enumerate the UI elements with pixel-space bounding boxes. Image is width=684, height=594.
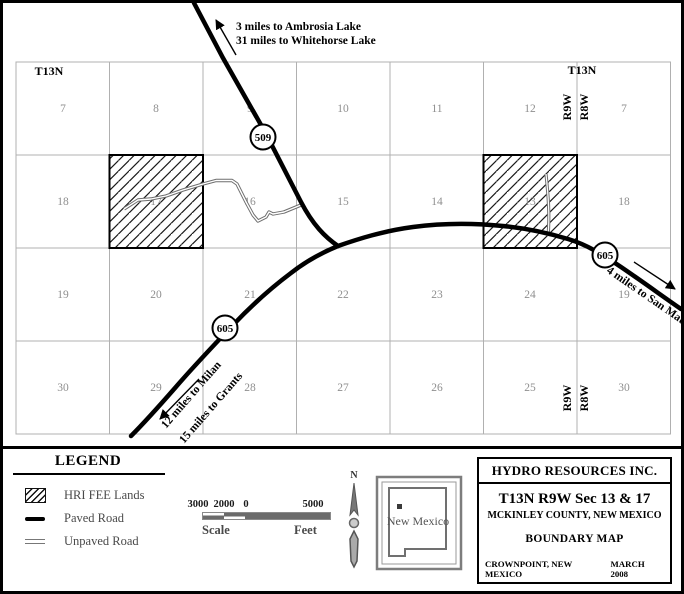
section-number: 29 xyxy=(150,382,162,394)
compass-needle-bottom xyxy=(350,531,358,567)
legend: LEGEND HRI FEE Lands Paved Road Unpaved … xyxy=(9,453,179,553)
route-shield-509: 509 xyxy=(251,125,276,150)
range-label-r8w-top: R8W xyxy=(577,94,591,121)
section-number: 22 xyxy=(337,289,349,301)
section-number: 30 xyxy=(57,382,69,394)
section-number: 24 xyxy=(524,289,536,301)
section-number: 23 xyxy=(431,289,443,301)
north-arrow: N xyxy=(337,466,371,572)
scale-tick-label: 3000 xyxy=(188,499,209,510)
map-sheet: 7 8 9 10 11 12 7 18 17 16 15 14 13 18 19… xyxy=(0,0,684,594)
svg-text:605: 605 xyxy=(597,250,614,262)
section-number: 8 xyxy=(153,103,159,115)
township-label-left: T13N xyxy=(35,64,64,78)
location-title: T13N R9W Sec 13 & 17 xyxy=(479,491,670,508)
county-label: MCKINLEY COUNTY, NEW MEXICO xyxy=(479,510,670,521)
map-panel: 7 8 9 10 11 12 7 18 17 16 15 14 13 18 19… xyxy=(3,3,681,446)
map-svg: 7 8 9 10 11 12 7 18 17 16 15 14 13 18 19… xyxy=(3,3,681,446)
section-number: 20 xyxy=(150,289,162,301)
range-label-r9w-top: R9W xyxy=(560,94,574,121)
section-number: 21 xyxy=(244,289,256,301)
compass-needle-top xyxy=(350,483,358,515)
north-label: N xyxy=(350,470,358,481)
section-number: 28 xyxy=(244,382,256,394)
section-number: 19 xyxy=(57,289,69,301)
section-number: 30 xyxy=(618,382,630,394)
scale-tick-label: 5000 xyxy=(303,499,324,510)
section-number: 12 xyxy=(524,103,536,115)
section-number: 7 xyxy=(621,103,627,115)
title-block: HYDRO RESOURCES INC. T13N R9W Sec 13 & 1… xyxy=(477,457,672,584)
section-number: 18 xyxy=(57,196,69,208)
state-name-label: New Mexico xyxy=(387,514,449,528)
legend-item: HRI FEE Lands xyxy=(9,484,179,507)
date-label: MARCH 2008 xyxy=(610,559,664,579)
legend-item: Unpaved Road xyxy=(9,530,179,553)
section-number: 13 xyxy=(524,196,536,208)
section-number: 14 xyxy=(431,196,443,208)
svg-text:605: 605 xyxy=(217,323,234,335)
section-number: 26 xyxy=(431,382,443,394)
township-label-right: T13N xyxy=(568,63,597,77)
paved-road-icon xyxy=(25,517,45,521)
section-number: 25 xyxy=(524,382,536,394)
hatch-swatch-icon xyxy=(25,488,46,503)
section-number: 18 xyxy=(618,196,630,208)
legend-item: Paved Road xyxy=(9,507,179,530)
legend-title: LEGEND xyxy=(9,453,167,470)
scale-tick-label: 0 xyxy=(243,499,248,510)
state-inset: New Mexico xyxy=(375,475,463,571)
dest-ambrosia-lake-label: 3 miles to Ambrosia Lake xyxy=(236,21,361,33)
section-number: 10 xyxy=(337,103,349,115)
route-shield-605-southwest: 605 xyxy=(213,316,238,341)
scale-bar: 3000 2000 0 5000 Scale Feet xyxy=(186,499,351,541)
legend-item-label: Unpaved Road xyxy=(64,534,139,549)
location-marker xyxy=(397,504,402,509)
scale-label: Scale xyxy=(202,523,230,538)
section-number: 15 xyxy=(337,196,349,208)
section-number: 7 xyxy=(60,103,66,115)
route-shield-605-east: 605 xyxy=(593,243,618,268)
feet-label: Feet xyxy=(294,523,317,538)
section-number: 11 xyxy=(431,103,442,115)
scale-tick-label: 2000 xyxy=(214,499,235,510)
legend-underline xyxy=(13,473,165,475)
legend-item-label: Paved Road xyxy=(64,511,124,526)
range-label-r8w-bottom: R8W xyxy=(577,385,591,412)
company-name: HYDRO RESOURCES INC. xyxy=(479,459,670,484)
svg-text:509: 509 xyxy=(255,132,272,144)
dest-whitehorse-lake-label: 31 miles to Whitehorse Lake xyxy=(236,35,376,47)
bottom-panel: LEGEND HRI FEE Lands Paved Road Unpaved … xyxy=(3,446,681,591)
section-number: 27 xyxy=(337,382,349,394)
unpaved-road-icon xyxy=(25,539,45,543)
range-label-r9w-bottom: R9W xyxy=(560,385,574,412)
scale-bar-graphic xyxy=(202,512,331,520)
legend-item-label: HRI FEE Lands xyxy=(64,488,145,503)
city-label: CROWNPOINT, NEW MEXICO xyxy=(485,559,610,579)
map-type-label: BOUNDARY MAP xyxy=(479,533,670,545)
compass-hub xyxy=(350,519,359,528)
